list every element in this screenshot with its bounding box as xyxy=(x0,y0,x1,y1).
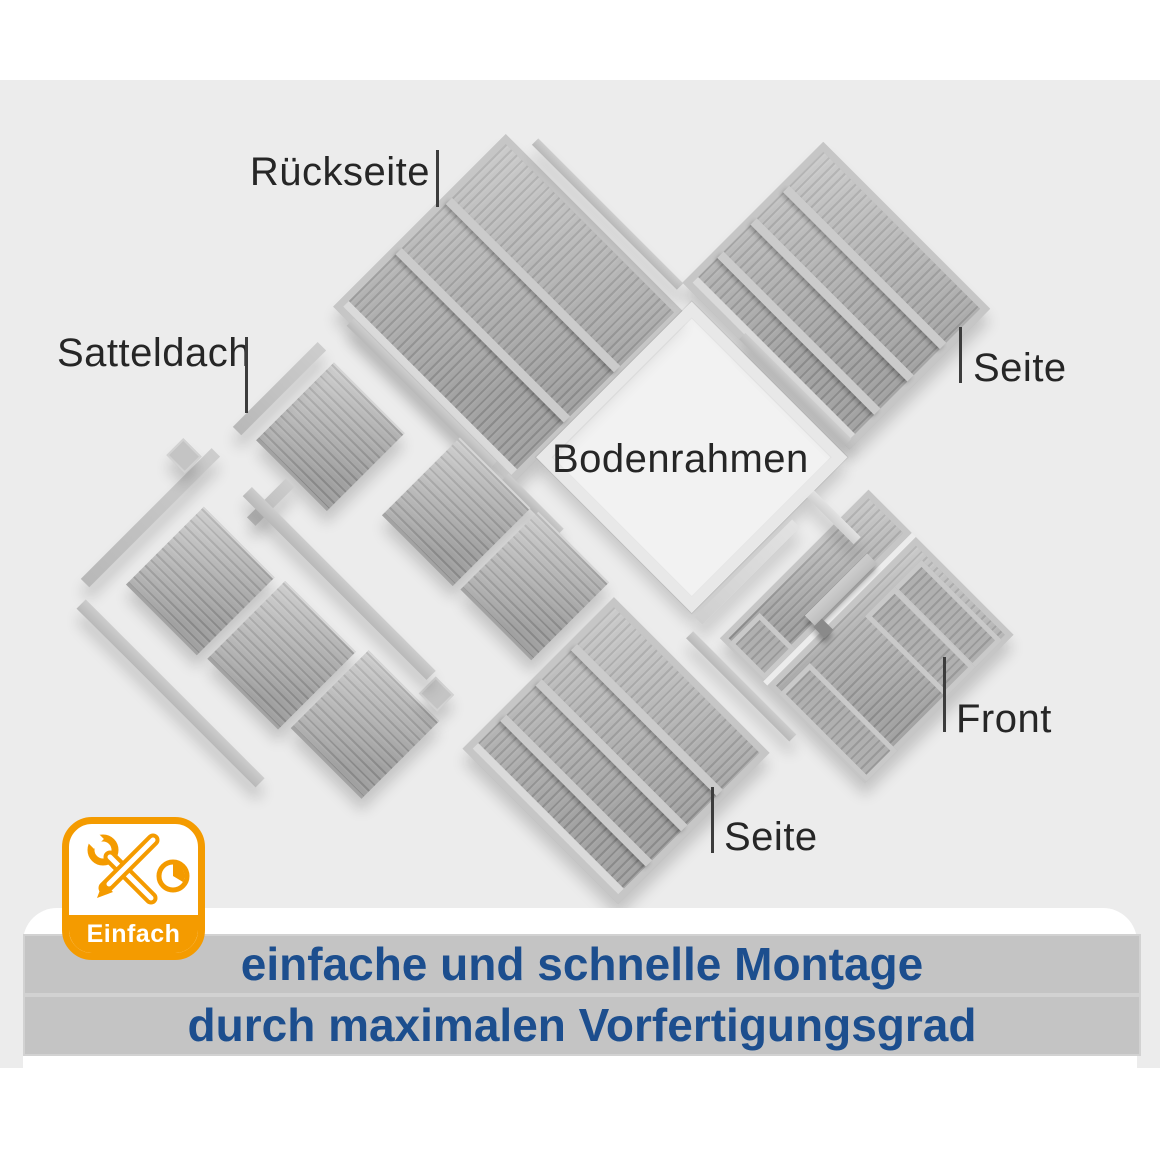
wrench-icon xyxy=(84,829,151,898)
diagram-stage: Rückseite Satteldach Bodenrahmen Seite F… xyxy=(0,0,1160,1160)
caption-line-2: durch maximalen Vorfertigungsgrad xyxy=(23,995,1141,1056)
badge-label: Einfach xyxy=(87,920,181,949)
label-bodenrahmen: Bodenrahmen xyxy=(552,437,792,481)
callout-line-rueckseite xyxy=(436,150,439,207)
label-front: Front xyxy=(956,697,1052,741)
label-seite-bottom: Seite xyxy=(724,815,818,859)
front-door-lite xyxy=(779,663,898,782)
label-rueckseite: Rückseite xyxy=(235,150,430,194)
label-seite-right: Seite xyxy=(973,346,1067,390)
callout-line-front xyxy=(943,657,946,732)
badge-label-bar: Einfach xyxy=(69,915,198,953)
batten xyxy=(571,644,723,796)
callout-line-satteldach xyxy=(245,337,248,413)
callout-line-seite-right xyxy=(959,327,962,383)
easy-assembly-badge: Einfach xyxy=(62,817,205,960)
callout-line-seite-bottom xyxy=(711,787,714,853)
label-satteldach: Satteldach xyxy=(57,331,251,375)
clock-icon xyxy=(159,862,187,890)
tools-icon xyxy=(73,826,197,918)
batten xyxy=(446,198,621,373)
batten xyxy=(535,679,687,831)
batten xyxy=(783,186,946,349)
